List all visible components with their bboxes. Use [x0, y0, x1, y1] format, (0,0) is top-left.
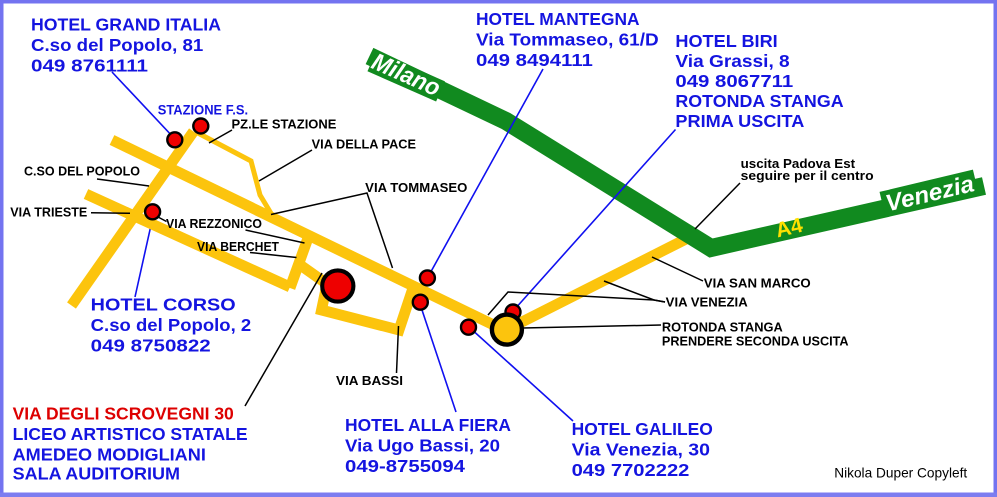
svg-text:PZ.LE STAZIONE: PZ.LE STAZIONE: [232, 118, 337, 132]
svg-text:049 8494111: 049 8494111: [476, 50, 593, 70]
svg-text:ROTONDA STANGA: ROTONDA STANGA: [662, 321, 783, 335]
svg-text:HOTEL MANTEGNA: HOTEL MANTEGNA: [476, 9, 640, 29]
svg-text:HOTEL GRAND ITALIA: HOTEL GRAND ITALIA: [31, 14, 221, 34]
svg-text:Via Venezia, 30: Via Venezia, 30: [572, 440, 711, 460]
svg-text:VIA TRIESTE: VIA TRIESTE: [10, 206, 87, 220]
svg-text:Nikola Duper Copyleft: Nikola Duper Copyleft: [834, 465, 967, 481]
svg-text:PRIMA USCITA: PRIMA USCITA: [675, 111, 804, 131]
svg-text:SALA AUDITORIUM: SALA AUDITORIUM: [13, 464, 180, 484]
svg-text:049 7702222: 049 7702222: [572, 460, 690, 480]
svg-text:VIA BERCHET: VIA BERCHET: [197, 240, 279, 254]
svg-text:VIA DELLA PACE: VIA DELLA PACE: [312, 137, 416, 151]
svg-text:Via Grassi, 8: Via Grassi, 8: [675, 51, 790, 71]
svg-text:049-8755094: 049-8755094: [345, 456, 465, 476]
svg-text:Via Ugo Bassi, 20: Via Ugo Bassi, 20: [345, 435, 500, 455]
svg-text:seguire per il centro: seguire per il centro: [741, 169, 874, 183]
svg-text:AMEDEO MODIGLIANI: AMEDEO MODIGLIANI: [13, 445, 206, 465]
svg-text:C.so del Popolo, 2: C.so del Popolo, 2: [91, 315, 252, 335]
svg-text:VIA SAN MARCO: VIA SAN MARCO: [704, 277, 811, 291]
svg-text:C.SO DEL POPOLO: C.SO DEL POPOLO: [24, 164, 140, 178]
svg-text:VIA DEGLI SCROVEGNI 30: VIA DEGLI SCROVEGNI 30: [13, 404, 234, 424]
svg-text:049 8761111: 049 8761111: [31, 56, 148, 76]
svg-text:VIA VENEZIA: VIA VENEZIA: [666, 295, 748, 309]
svg-text:HOTEL ALLA FIERA: HOTEL ALLA FIERA: [345, 415, 511, 435]
svg-text:C.so del Popolo, 81: C.so del Popolo, 81: [31, 35, 204, 55]
svg-text:049 8067711: 049 8067711: [675, 71, 793, 91]
svg-text:049 8750822: 049 8750822: [91, 336, 211, 356]
svg-text:HOTEL GALILEO: HOTEL GALILEO: [572, 419, 713, 439]
svg-text:VIA REZZONICO: VIA REZZONICO: [166, 217, 262, 231]
svg-text:LICEO ARTISTICO STATALE: LICEO ARTISTICO STATALE: [13, 424, 248, 444]
svg-text:Via Tommaseo, 61/D: Via Tommaseo, 61/D: [476, 30, 659, 50]
svg-text:VIA TOMMASEO: VIA TOMMASEO: [365, 181, 467, 195]
svg-text:VIA BASSI: VIA BASSI: [336, 374, 403, 388]
svg-text:HOTEL BIRI: HOTEL BIRI: [675, 31, 777, 51]
svg-text:STAZIONE F.S.: STAZIONE F.S.: [158, 101, 248, 117]
svg-text:ROTONDA STANGA: ROTONDA STANGA: [675, 91, 843, 111]
svg-text:HOTEL CORSO: HOTEL CORSO: [91, 295, 236, 315]
svg-text:PRENDERE SECONDA USCITA: PRENDERE SECONDA USCITA: [662, 335, 849, 349]
